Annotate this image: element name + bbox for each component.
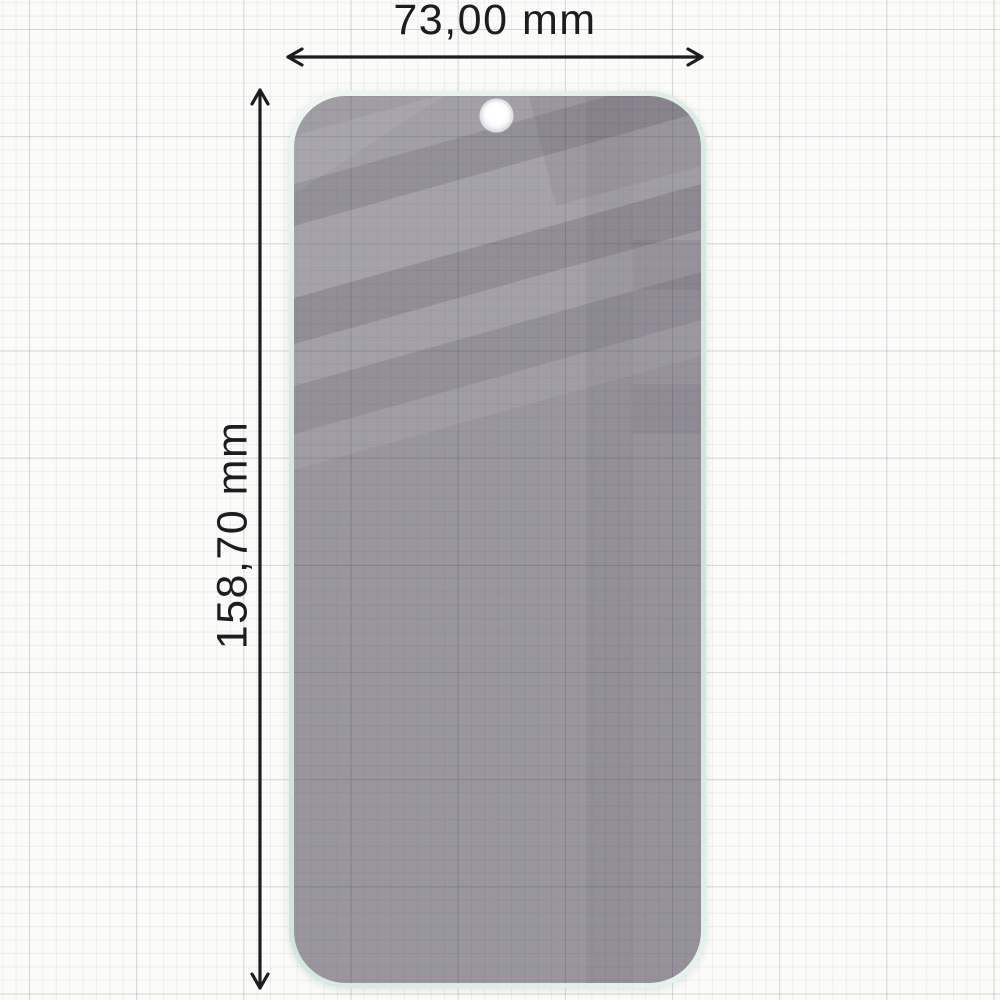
camera-hole-icon xyxy=(482,101,511,130)
glass-surface xyxy=(294,96,701,983)
height-dimension-label: 158,70 mm xyxy=(209,421,258,650)
glass-reflections xyxy=(294,96,701,983)
screen-protector xyxy=(289,91,706,988)
width-dimension-label: 73,00 mm xyxy=(285,0,705,43)
product-dimension-diagram: 73,00 mm 158,70 mm xyxy=(0,0,1000,1000)
horizontal-double-arrow-icon xyxy=(284,45,706,69)
